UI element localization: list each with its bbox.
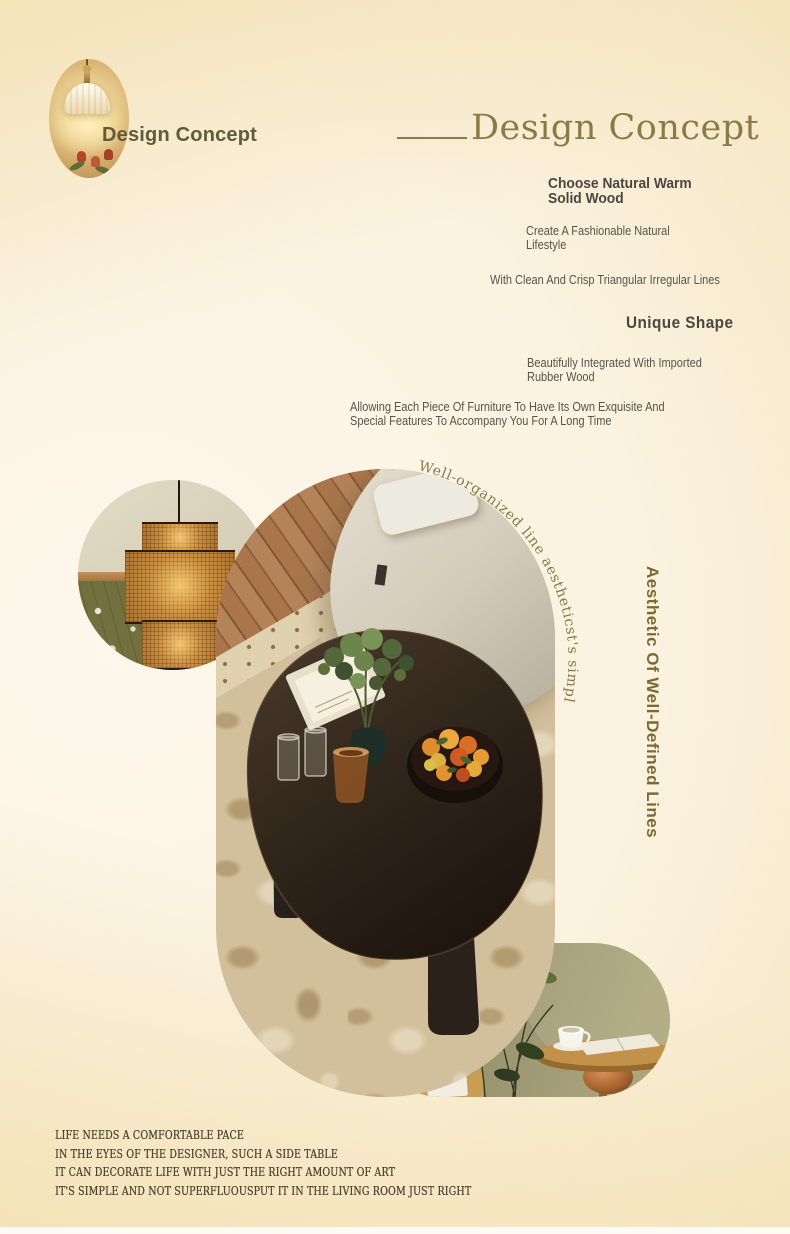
footer-line: IN THE EYES OF THE DESIGNER, SUCH A SIDE… [55, 1145, 471, 1164]
vertical-caption: Aesthetic Of Well-Defined Lines [642, 566, 662, 838]
pendant-cord [178, 480, 180, 524]
design-concept-section: Design Concept Design Concept Choose Nat… [0, 0, 790, 1234]
section-bottom-strip [0, 1227, 790, 1234]
section-title: Design Concept [471, 108, 759, 148]
fruit-bowl [407, 727, 503, 803]
tulip-flower [77, 151, 86, 162]
concept-point-rubber-wood: Beautifully Integrated With Imported Rub… [527, 357, 702, 385]
lamp-shade [64, 83, 110, 114]
footer-line: LIFE NEEDS A COMFORTABLE PACE [55, 1126, 471, 1145]
title-divider [397, 137, 467, 139]
overlay-title: Design Concept [102, 124, 257, 147]
rattan-tier-bottom [142, 620, 218, 670]
footer-line: IT'S SIMPLE AND NOT SUPERFLUOUSPUT IT IN… [55, 1182, 471, 1201]
concept-point-lifestyle: Create A Fashionable Natural Lifestyle [526, 225, 670, 253]
footer-description: LIFE NEEDS A COMFORTABLE PACE IN THE EYE… [55, 1126, 471, 1201]
wall-lamp-photo [49, 59, 129, 178]
footer-line: IT CAN DECORATE LIFE WITH JUST THE RIGHT… [55, 1163, 471, 1182]
amber-cup [333, 747, 369, 803]
concept-point-unique-shape: Unique Shape [626, 313, 733, 333]
tulip-flower [104, 149, 113, 160]
concept-point-lines: With Clean And Crisp Triangular Irregula… [490, 273, 720, 287]
tulip-flower [91, 156, 100, 167]
curved-caption: Well-organized line aestheticst's simple [340, 425, 640, 725]
curved-caption-text: Well-organized line aestheticst's simple [340, 425, 581, 705]
concept-point-solid-wood: Choose Natural Warm Solid Wood [548, 176, 692, 207]
svg-text:Well-organized line aesthetics: Well-organized line aestheticst's simple [340, 425, 581, 705]
